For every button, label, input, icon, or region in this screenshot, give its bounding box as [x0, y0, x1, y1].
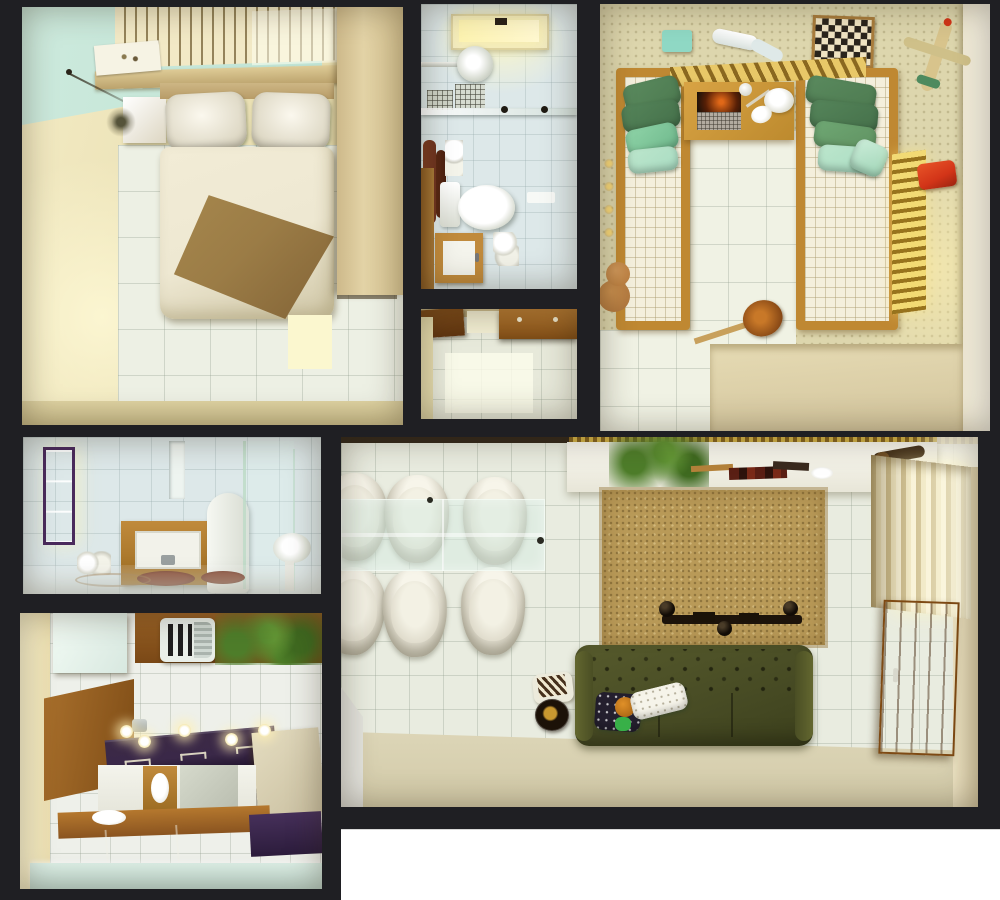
- cabinet-knob-2: [553, 317, 558, 322]
- inset-sink-oval: [151, 773, 169, 803]
- sofa-armrest-left: [575, 651, 593, 741]
- wardrobe: [337, 7, 403, 295]
- dining-chair-5: [381, 568, 448, 658]
- floor-light-reflection: [527, 192, 555, 203]
- laptop-screen: [697, 92, 741, 112]
- vanity-faucet: [161, 555, 175, 565]
- pendant-bulb-2: [138, 735, 151, 748]
- dining-chair-6: [460, 566, 526, 655]
- toy-bottle-2: [749, 37, 785, 64]
- purple-worktop-right: [249, 811, 322, 857]
- deco-plant: [106, 107, 136, 137]
- bathrobe-hooks: [493, 232, 519, 266]
- wooden-door: [878, 600, 959, 757]
- striped-card: [537, 674, 568, 698]
- doorway-light: [467, 311, 499, 333]
- banjo: [535, 699, 569, 731]
- counter-handle-2: [180, 752, 207, 761]
- dining-chair-4: [341, 566, 387, 656]
- shower-head: [457, 46, 493, 82]
- mint-cabinet-front: [30, 863, 322, 889]
- teal-toy-box: [662, 30, 692, 52]
- entry-cabinet: [499, 309, 577, 339]
- door-threshold-line: [337, 295, 397, 299]
- table-fitting-1: [537, 537, 544, 544]
- glass-dining-table: [341, 499, 545, 571]
- table-fitting-2: [427, 497, 433, 503]
- pillow-right: [251, 92, 331, 151]
- duvet: [160, 147, 334, 319]
- shower-head-2: [273, 533, 311, 563]
- vent-slats: [168, 624, 192, 656]
- fridge-top: [53, 613, 127, 673]
- mosaic-tiles: [427, 90, 453, 110]
- wall-niche: [169, 441, 185, 499]
- wall-edge-wood: [421, 168, 434, 289]
- stove-block: [251, 727, 322, 818]
- double-bed: [160, 83, 334, 319]
- tv-soundbar: [662, 615, 802, 624]
- cabinet-knob-1: [517, 317, 522, 322]
- console-plant: [609, 437, 709, 487]
- entry-bright-floor: [445, 353, 533, 413]
- entry-left-wall: [421, 317, 433, 419]
- pendant-bulb-3: [178, 724, 191, 737]
- pillow-left: [165, 91, 248, 151]
- room-bedroom: [22, 7, 403, 425]
- floor-sheen: [23, 565, 321, 594]
- air-vent-unit: [160, 618, 215, 662]
- wall-faucet: [132, 719, 147, 732]
- apartment-floorplan-render: [0, 0, 1000, 900]
- white-plate: [92, 810, 126, 825]
- glass-screen-rail: [421, 108, 577, 115]
- console-dish: [811, 467, 833, 479]
- skylight: [451, 14, 549, 50]
- room-kids: [600, 4, 990, 431]
- guitar-body: [738, 295, 787, 342]
- bathroom2-window: [43, 447, 75, 545]
- floor-light-patch: [288, 315, 332, 369]
- rail-roller-1: [501, 106, 508, 113]
- room-living: [341, 437, 978, 807]
- tv-block-1: [693, 612, 715, 622]
- toilet-bowl: [458, 185, 515, 230]
- toilet-tank: [440, 182, 460, 227]
- cabinet-wood-door: [143, 766, 177, 812]
- speaker-center: [717, 621, 732, 636]
- speaker-left: [659, 601, 675, 617]
- room-kitchen: [20, 613, 322, 889]
- left-grey-wall: [341, 687, 363, 807]
- vanity-door-panel: [443, 241, 475, 275]
- rail-roller-2: [541, 106, 548, 113]
- door-handle-2: [893, 668, 898, 682]
- vanity-door: [435, 233, 483, 283]
- art-print: [94, 40, 161, 76]
- pendant-bulb-5: [258, 724, 271, 737]
- guitar-neck: [694, 321, 751, 345]
- toilet-paper-rolls: [445, 140, 463, 176]
- sofa-back-tufted: [581, 649, 807, 693]
- mosaic-tiles-2: [455, 84, 485, 108]
- room-entry: [421, 309, 577, 419]
- toy-car: [916, 159, 957, 190]
- sofa-armrest-right: [795, 651, 813, 741]
- room-bathroom-2: [23, 437, 321, 594]
- balcony-parapet: [710, 344, 963, 431]
- white-margin-block: [341, 829, 1000, 900]
- bedroom-bottom-wall: [22, 401, 403, 425]
- kids-floor-bottom: [600, 330, 710, 431]
- door-handle: [475, 253, 479, 262]
- green-toy: [615, 717, 631, 731]
- teddy-head: [606, 262, 630, 286]
- speaker-right: [783, 601, 798, 616]
- teddy-bear: [600, 262, 636, 314]
- vent-ridges: [194, 622, 212, 658]
- fern-plant: [215, 613, 322, 665]
- brown-throw-blanket: [160, 147, 334, 319]
- skylight-latch: [495, 18, 507, 25]
- sofa: [575, 645, 813, 746]
- pendant-bulb-4: [225, 733, 238, 746]
- tv-block-2: [739, 613, 759, 622]
- desk-jar: [739, 83, 752, 96]
- curtains: [871, 455, 971, 619]
- laptop-keyboard: [697, 112, 741, 130]
- pendant-bulb-1: [120, 725, 133, 738]
- top-wall-trim-dark: [341, 437, 569, 443]
- room-bathroom-top: [421, 4, 577, 289]
